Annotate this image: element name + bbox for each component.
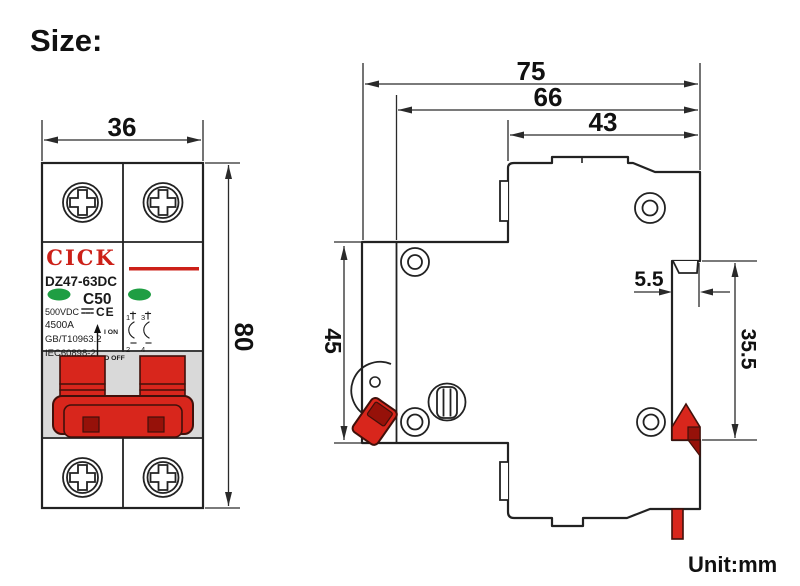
terminal1-text: 1 (126, 313, 130, 322)
dimension-drawing: Size: Unit:mm (0, 0, 800, 586)
clip-pull-tab (672, 509, 683, 539)
rating-label: CICK DZ47-63DC C50 500VDC CE 4500A GB/T1… (45, 245, 125, 366)
green-indicator (128, 289, 151, 301)
standard1-text: GB/T10963.2 (45, 334, 102, 345)
screw-icon (63, 458, 102, 497)
side-tab-upper (500, 181, 508, 221)
dim-din-notch: 5.5 (634, 268, 664, 291)
din-groove-lip (673, 261, 698, 273)
handle-bar-notch (83, 417, 99, 432)
unit-label: Unit:mm (688, 552, 777, 577)
terminal4-text: 4 (141, 345, 145, 354)
dim-front-width: 36 (108, 112, 137, 142)
handle-lever-right (140, 356, 185, 400)
rivet-icon (637, 408, 665, 436)
voltage-text: 500VDC (45, 307, 80, 317)
pole-diagram: 1 3 2 4 (126, 267, 199, 354)
clip-latch (688, 427, 700, 440)
switch-symbol-icon (129, 312, 151, 343)
toggle-pivot-hole (370, 377, 380, 387)
page-title: Size: (30, 23, 102, 58)
handle-bar-notch (148, 417, 164, 432)
side-view (351, 157, 700, 526)
handle-lever-left (60, 356, 105, 400)
coil-window-icon (429, 384, 466, 421)
terminal2-text: 2 (126, 345, 130, 354)
side-tab-lower (500, 462, 508, 500)
on-label: I ON (104, 329, 118, 336)
dim-din-rail: 35.5 (737, 329, 760, 370)
dc-symbol-icon (82, 309, 93, 313)
green-indicator (48, 289, 71, 301)
ce-mark: CE (96, 305, 115, 319)
red-underline (129, 267, 199, 271)
dim-depth-top: 43 (589, 107, 618, 137)
terminal3-text: 3 (141, 313, 145, 322)
rivet-icon (635, 193, 665, 223)
front-view: CICK DZ47-63DC C50 500VDC CE 4500A GB/T1… (42, 163, 203, 508)
dim-panel-height: 45 (320, 328, 346, 354)
breaking-capacity-text: 4500A (45, 320, 74, 331)
screw-icon (144, 458, 183, 497)
off-label: O OFF (104, 355, 125, 362)
screw-icon (63, 183, 102, 222)
dim-front-height: 80 (229, 323, 259, 352)
breaker-dimension-sheet: Size: Unit:mm (0, 0, 800, 586)
brand-text: CICK (46, 245, 116, 270)
dim-depth-body: 66 (534, 82, 563, 112)
rivet-icon (401, 408, 429, 436)
model-text: DZ47-63DC (45, 274, 117, 289)
rivet-icon (401, 248, 429, 276)
screw-icon (144, 183, 183, 222)
